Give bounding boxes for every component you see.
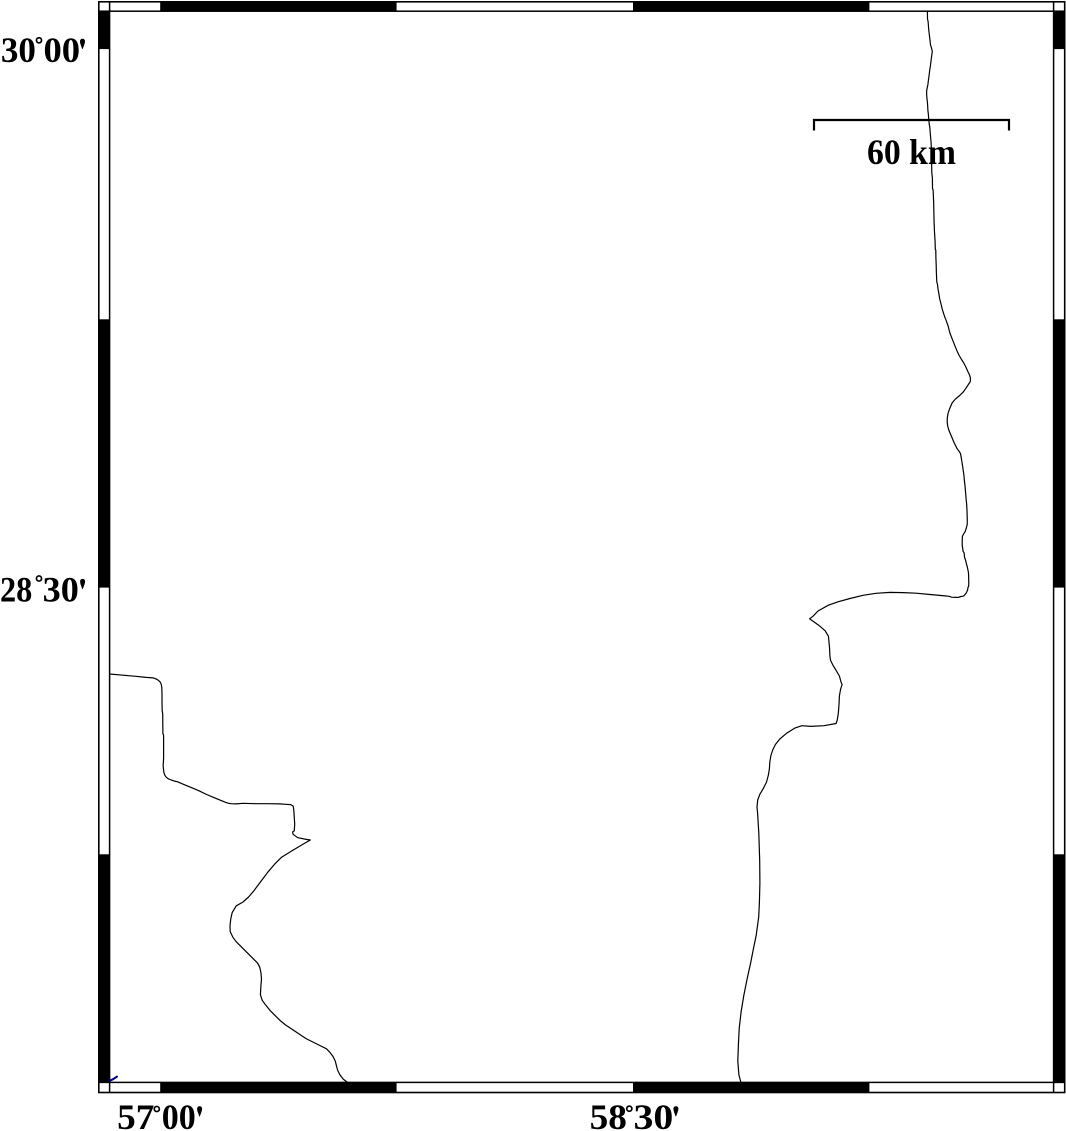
svg-text:60 km: 60 km (867, 132, 956, 172)
svg-text:30: 30 (43, 570, 79, 610)
svg-text:30: 30 (634, 1097, 674, 1131)
svg-text:30: 30 (1, 30, 36, 70)
svg-text:58: 58 (590, 1097, 627, 1131)
svg-text:00: 00 (162, 1097, 196, 1131)
svg-text:28: 28 (0, 570, 32, 610)
svg-text:00: 00 (44, 30, 81, 70)
svg-text:57: 57 (117, 1097, 154, 1131)
